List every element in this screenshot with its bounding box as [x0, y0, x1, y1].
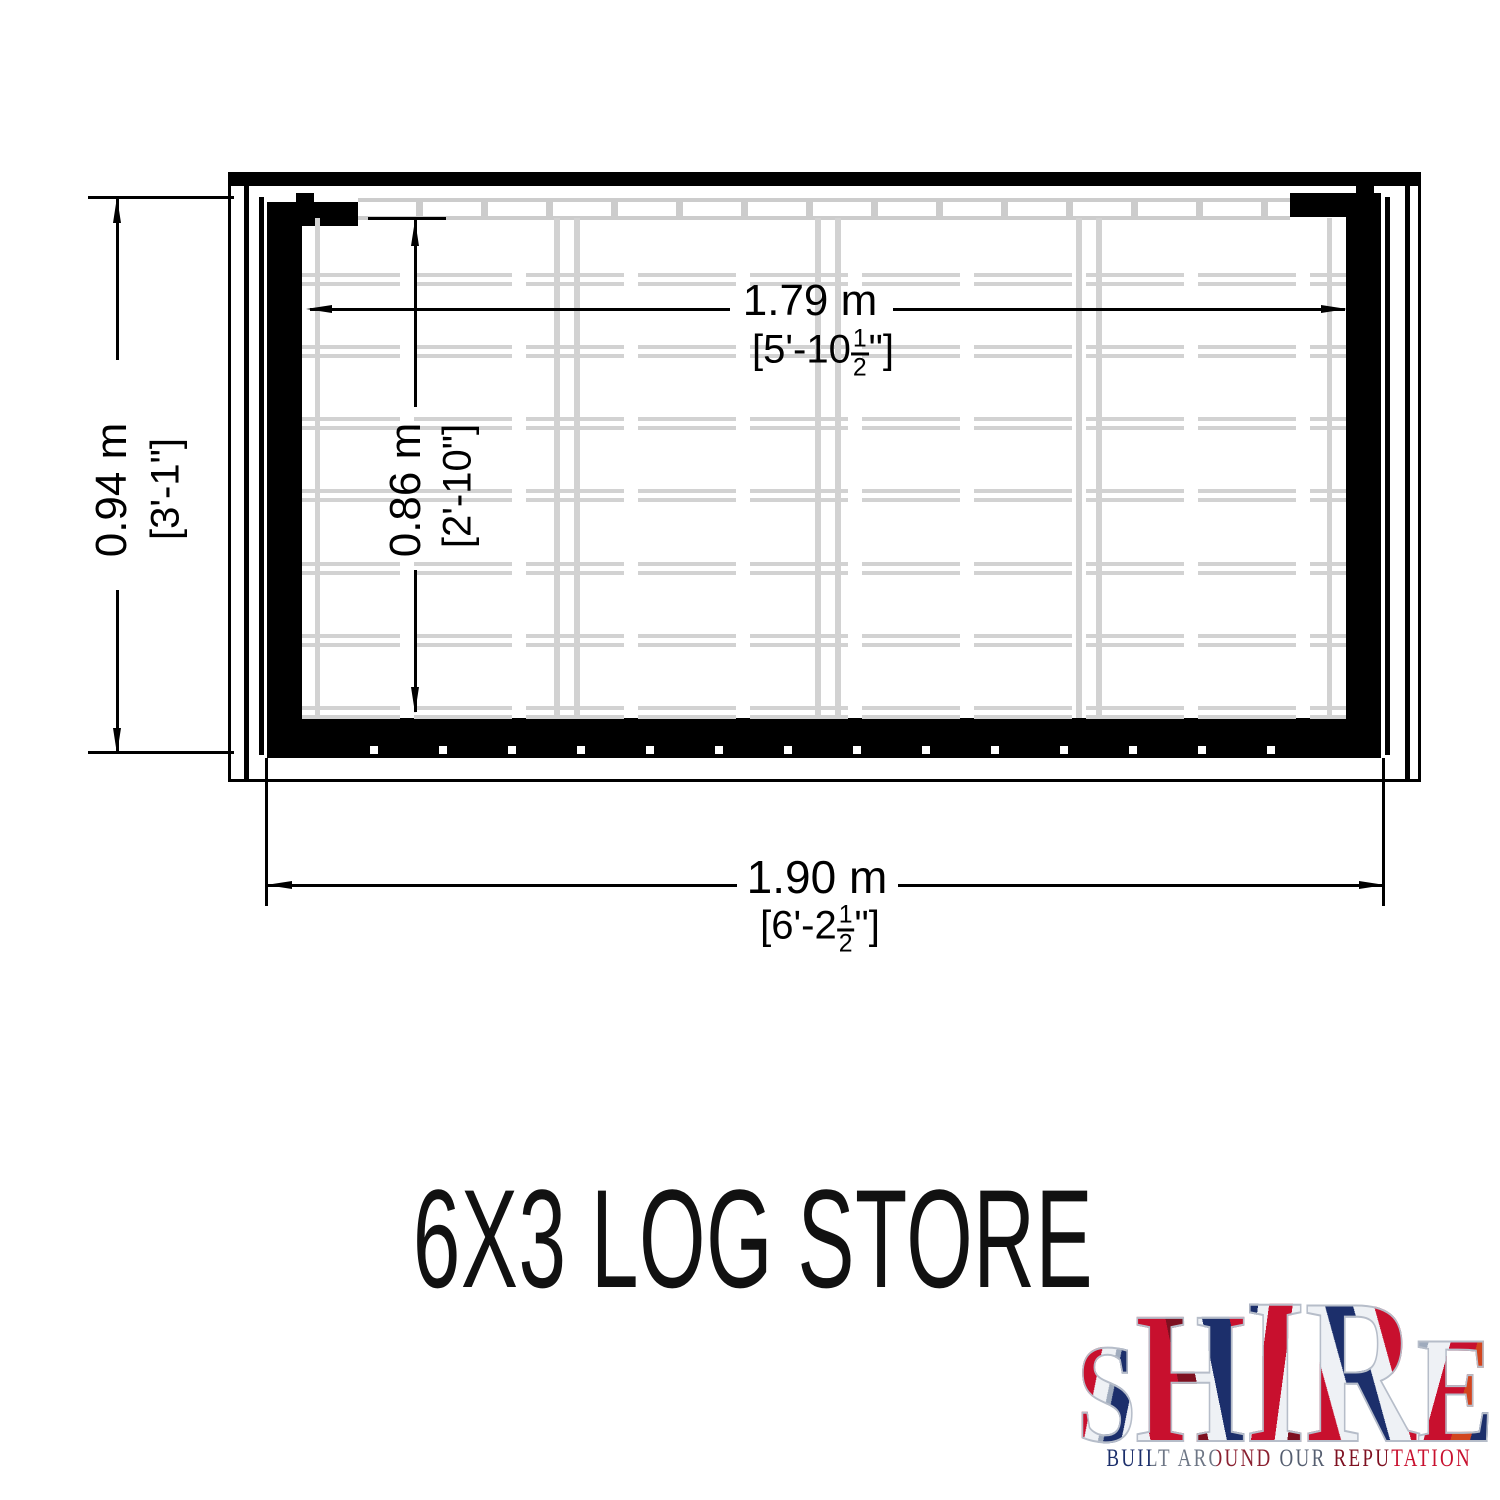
dim-outer-depth-imperial: [3'-1"]: [144, 438, 189, 540]
shire-logo: SHIRE BUILT AROUND OUR REPUTATION: [1077, 1267, 1472, 1487]
dimension-line: [414, 220, 417, 407]
fraction-numerator: 1: [851, 326, 869, 355]
imperial-suffix: "]: [855, 904, 880, 948]
front-beam-fixings: [370, 746, 1334, 754]
dim-inner-depth-imperial: [2'-10"]: [436, 424, 481, 548]
dim-outer-depth-metric: 0.94 m: [87, 423, 137, 558]
dimension-line: [893, 308, 1345, 311]
extension-line: [368, 217, 446, 220]
floor-slat-band: [302, 706, 1346, 719]
imperial-suffix: "]: [869, 328, 894, 372]
wall-left: [267, 202, 302, 758]
dimension-line: [267, 884, 737, 887]
wall-stub-left: [267, 202, 358, 226]
arrowhead-left: [266, 881, 292, 889]
wall-stub-right-nub: [1356, 185, 1374, 193]
wall-stub-left-nub: [296, 193, 314, 202]
product-title: 6X3 LOG STORE: [413, 1158, 1093, 1320]
fraction-denominator: 2: [837, 932, 855, 958]
extension-line: [88, 751, 234, 754]
dim-inner-width-metric: 1.79 m: [743, 276, 878, 326]
arrowhead-down: [113, 728, 121, 754]
dimension-line: [310, 308, 730, 311]
extension-line: [88, 196, 234, 199]
fraction: 12: [837, 902, 855, 957]
dim-outer-width-imperial: [6'-212"]: [760, 902, 880, 957]
imperial-prefix: [6'-2: [760, 904, 837, 948]
dimension-line: [898, 884, 1385, 887]
fraction: 12: [851, 326, 869, 381]
arrowhead-up: [411, 220, 419, 246]
dim-outer-width-metric: 1.90 m: [747, 850, 888, 904]
logo-tagline: BUILT AROUND OUR REPUTATION: [1106, 1445, 1472, 1473]
floor-slat-band: [302, 634, 1346, 647]
dim-inner-width-imperial: [5'-1012"]: [752, 326, 894, 381]
arrowhead-left: [306, 305, 332, 313]
arrowhead-right: [1321, 305, 1347, 313]
wall-right: [1346, 193, 1381, 758]
roof-back-bar: [228, 174, 1418, 186]
shire-logo-letters: SHIRE: [1077, 1267, 1472, 1475]
roof-edge-line-right-inner: [1385, 197, 1390, 755]
roof-edge-line-left-inner: [259, 197, 264, 755]
arrowhead-right: [1359, 881, 1385, 889]
arrowhead-down: [411, 687, 419, 713]
arrowhead-up: [113, 197, 121, 223]
roof-edge-line-left-outer: [244, 186, 249, 779]
floor-slat-band: [302, 562, 1346, 575]
roof-edge-line-right-outer: [1405, 186, 1410, 779]
fraction-numerator: 1: [837, 902, 855, 931]
drawing-canvas: 0.94 m [3'-1"] 1.79 m [5'-1012"] 0.86 m …: [0, 0, 1500, 1500]
imperial-prefix: [5'-10: [752, 328, 851, 372]
dim-inner-depth-metric: 0.86 m: [381, 423, 431, 558]
back-slat-row: [358, 198, 1290, 220]
wall-stub-right: [1290, 193, 1381, 217]
fraction-denominator: 2: [851, 356, 869, 382]
